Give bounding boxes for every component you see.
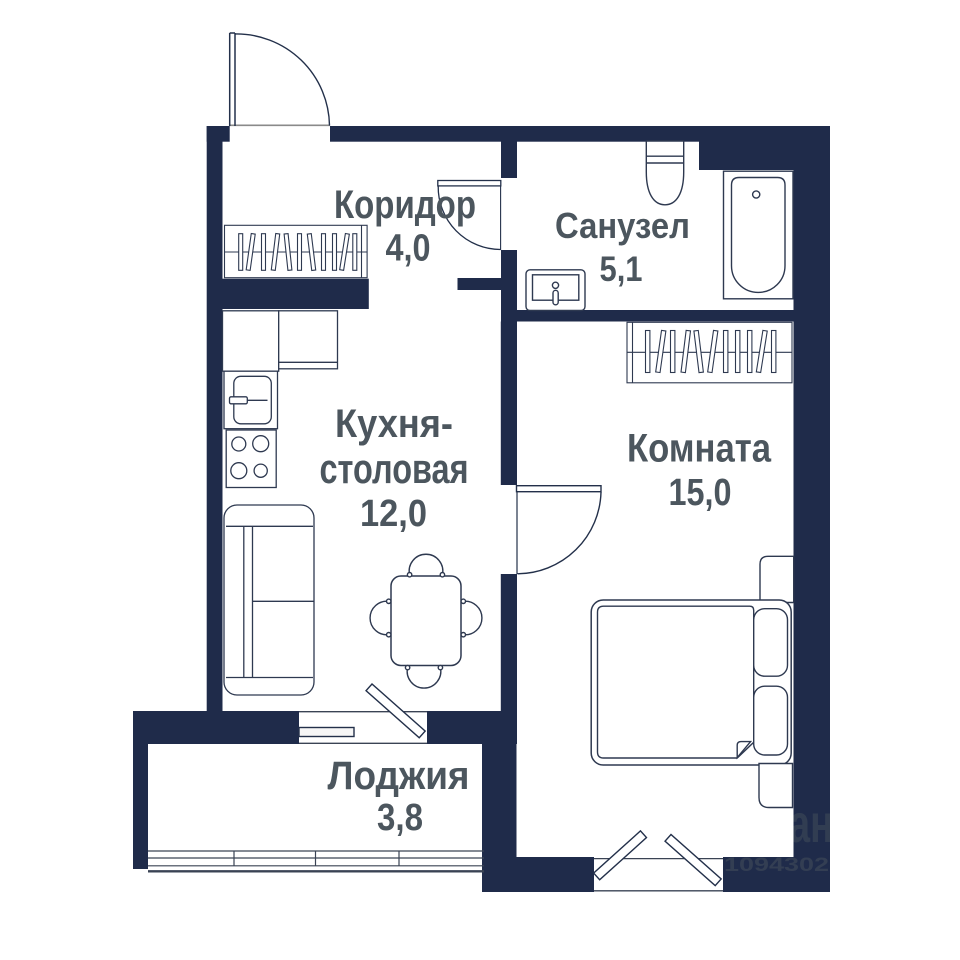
svg-text:Комната: Комната xyxy=(627,427,772,471)
svg-text:1094302: 1094302 xyxy=(724,854,829,876)
svg-text:15,0: 15,0 xyxy=(669,472,732,514)
svg-text:Кухня-: Кухня- xyxy=(335,402,453,446)
svg-text:Лоджия: Лоджия xyxy=(328,754,470,798)
svg-text:Санузел: Санузел xyxy=(555,205,690,246)
svg-text:5,1: 5,1 xyxy=(600,250,643,289)
svg-text:4,0: 4,0 xyxy=(386,228,431,270)
svg-text:Коридор: Коридор xyxy=(334,183,476,227)
svg-text:столовая: столовая xyxy=(320,445,469,492)
svg-text:12,0: 12,0 xyxy=(360,493,427,535)
svg-text:3,8: 3,8 xyxy=(377,797,423,839)
svg-text:ан: ан xyxy=(789,794,833,854)
